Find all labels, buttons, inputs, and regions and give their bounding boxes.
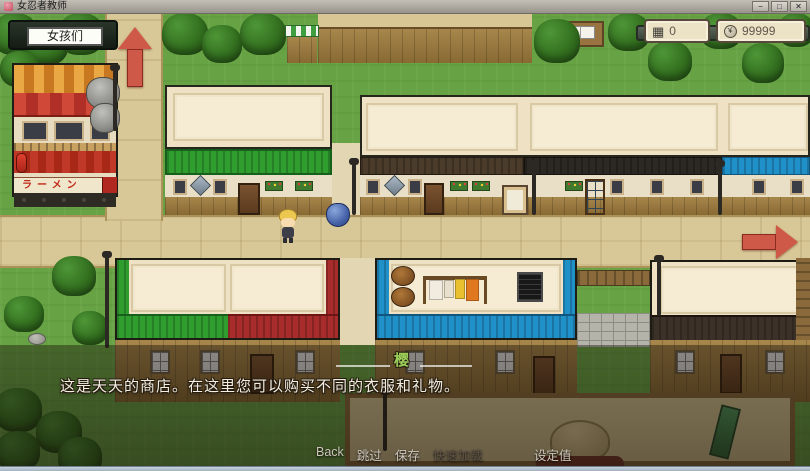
window: [752, 179, 766, 195]
arrow-head: [118, 27, 152, 49]
window: [54, 121, 84, 141]
twin-shop-building: [115, 258, 340, 340]
hanging-cloth: [429, 280, 443, 300]
tree: [240, 13, 286, 55]
black-roof-trim: [524, 157, 722, 175]
money-value: 99999: [742, 24, 775, 38]
top-shop-building: [318, 13, 532, 63]
tree: [72, 311, 108, 345]
girls-button[interactable]: 女孩们: [27, 27, 103, 46]
arrow-shaft: [127, 49, 143, 87]
window: [366, 179, 380, 195]
maximize-icon[interactable]: □: [771, 1, 788, 12]
door: [424, 183, 444, 215]
roof-panel: [366, 103, 518, 151]
lamp-post: [352, 163, 356, 215]
menu-settings[interactable]: 设定值: [534, 445, 572, 464]
title-bar[interactable]: 女忍者教师 − □ ✕: [0, 0, 810, 14]
shop-facade: [318, 29, 532, 63]
app-icon: [4, 2, 13, 11]
window: [650, 179, 664, 195]
window-controls: − □ ✕: [752, 1, 807, 12]
ramen-base: [14, 193, 116, 207]
brown-roof-trim: [360, 157, 524, 175]
side-fence: [796, 258, 810, 345]
counter-box[interactable]: ▦ 0: [644, 19, 710, 43]
ramen-sign: ラーメン: [14, 177, 106, 193]
menu-back[interactable]: Back: [316, 445, 344, 464]
lamp-post: [657, 260, 661, 316]
window: [610, 179, 624, 195]
money-box[interactable]: ¥ 99999: [716, 19, 806, 43]
notice-board: [502, 185, 528, 215]
green-roof-trim: [165, 149, 332, 175]
roof-panel: [728, 103, 808, 151]
bottom-menu: Back 跳过 保存 快速加载 设定值: [316, 445, 571, 464]
up-arrow-icon[interactable]: [118, 27, 152, 89]
right-building: [650, 260, 810, 340]
speaker-name: 樱: [394, 349, 409, 370]
roof-panel: [230, 264, 324, 312]
tree: [52, 256, 96, 296]
red-lantern: [16, 153, 27, 173]
girls-sign: 女孩们: [8, 20, 118, 50]
character-leg: [283, 238, 287, 243]
red-roof-trim: [228, 314, 338, 338]
money-icon: ¥: [723, 23, 738, 38]
game-viewport[interactable]: ラーメン: [0, 13, 810, 466]
balcony-rail: [14, 143, 116, 151]
window-title: 女忍者教师: [17, 0, 67, 13]
window-bottom-border: [0, 466, 810, 471]
tree: [4, 296, 44, 332]
arrow-shaft: [742, 234, 776, 250]
stone-path: [577, 313, 650, 347]
sign-end-tile: [102, 177, 117, 193]
menu-skip[interactable]: 跳过: [357, 445, 382, 464]
game-window: 女忍者教师 − □ ✕: [0, 0, 810, 471]
lamp-post: [113, 69, 117, 131]
barrel: [391, 287, 415, 307]
menu-save[interactable]: 保存: [395, 445, 420, 464]
dark-window-board: [517, 272, 543, 302]
minimize-icon[interactable]: −: [752, 1, 769, 12]
abacus-icon: ▦: [652, 25, 664, 38]
rack-post: [423, 276, 426, 304]
flower-box: [265, 181, 283, 191]
window: [790, 179, 804, 195]
book-spine: [580, 26, 581, 39]
menu-quickload: 快速加载: [433, 445, 483, 464]
speaker-line-left: [336, 365, 390, 367]
right-arrow-icon[interactable]: [742, 225, 798, 259]
flower-box: [565, 181, 583, 191]
roof-panel: [530, 103, 718, 151]
hanging-cloth: [455, 279, 465, 299]
glass-door: [585, 179, 605, 215]
rock: [28, 333, 46, 345]
tree: [648, 41, 692, 81]
window: [690, 179, 704, 195]
player-character: [278, 209, 298, 243]
dialogue-text: 这是天天的商店。在这里您可以购买不同的衣服和礼物。: [60, 375, 780, 396]
stand-awning: [285, 25, 319, 37]
blue-vase: [326, 203, 350, 227]
blue-shop-building: [375, 258, 577, 340]
blue-roof-trim: [722, 157, 810, 175]
counter-value: 0: [669, 24, 676, 38]
shop-roof: [318, 13, 532, 29]
window: [22, 121, 48, 141]
window: [408, 179, 422, 195]
window: [213, 179, 227, 195]
blue-roof-trim: [377, 314, 575, 338]
lamp-post: [532, 165, 536, 215]
window: [173, 179, 187, 195]
row-a-roof: [360, 95, 810, 157]
green-roof-trim: [117, 314, 228, 338]
character-body: [282, 227, 294, 238]
ramen-curtain-bottom: [14, 151, 116, 173]
hanging-cloth: [444, 280, 454, 298]
stand-base: [287, 37, 317, 63]
green-building-roof: [165, 85, 332, 149]
notice-paper: [507, 190, 523, 210]
lamp-post: [105, 256, 109, 348]
sand-path: [340, 258, 375, 345]
wooden-fence: [577, 270, 650, 286]
roof-panel: [660, 266, 806, 314]
lamp-post: [718, 165, 722, 215]
door: [238, 183, 260, 215]
tree: [202, 25, 242, 63]
close-icon[interactable]: ✕: [790, 1, 807, 12]
flower-box: [450, 181, 468, 191]
awning-stand: [285, 25, 319, 63]
speaker-line-right: [420, 365, 472, 367]
diamond-sign: [384, 175, 405, 196]
hanging-cloth: [466, 279, 479, 301]
diamond-sign: [190, 175, 211, 196]
tree: [742, 43, 784, 83]
rack-post: [484, 276, 487, 304]
roof-panel: [131, 264, 226, 312]
roof-panel: [173, 93, 324, 141]
dark-roof-trim: [652, 315, 810, 340]
character-leg: [289, 238, 293, 243]
character-face: [281, 218, 295, 227]
barrel: [391, 266, 415, 286]
flower-box: [472, 181, 490, 191]
flower-box: [295, 181, 313, 191]
arrow-head: [776, 225, 798, 259]
tree: [534, 19, 580, 63]
